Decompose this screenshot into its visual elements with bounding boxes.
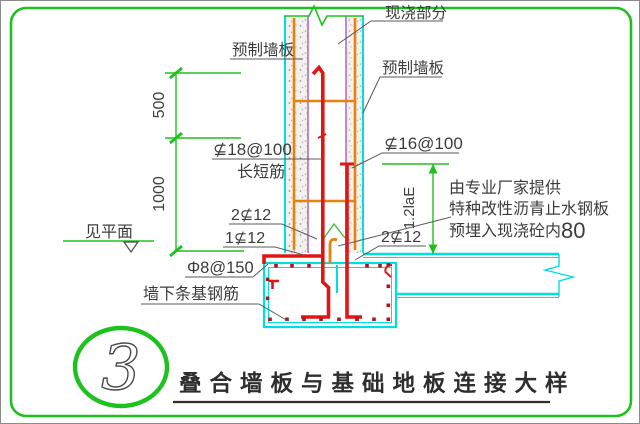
- note-line3: 预埋入现浇砼内: [449, 222, 561, 240]
- note-line2: 特种改性沥青止水钢板: [449, 200, 609, 218]
- label-precast-wall-left: 预制墙板: [232, 41, 294, 59]
- label-wall-vertical-rebar: ⊈18@100: [213, 140, 292, 159]
- rebar-red-bars: [264, 68, 392, 318]
- waterstop-plate: [330, 239, 337, 263]
- drawing-title: 叠合墙板与基础地板连接大样: [179, 370, 576, 396]
- label-starter-rebar: ⊈16@100: [384, 134, 463, 153]
- detail-number: 3: [101, 331, 140, 404]
- label-foundation-stirrup: Φ8@150: [187, 259, 254, 277]
- label-top-bars-left: 2⊈12: [231, 207, 271, 224]
- label-joint-bars-right: 2⊈12: [381, 229, 421, 246]
- note-embed-depth: 80: [561, 218, 585, 243]
- grout-key-chamfer: [324, 224, 345, 238]
- label-strip-foundation-rebar: 墙下条基钢筋: [143, 285, 239, 303]
- label-wall-rebar-note: 长短筋: [237, 163, 285, 181]
- label-cast-in-place: 现浇部分: [385, 4, 447, 22]
- floor-slab-outline: [363, 254, 573, 298]
- label-ground-reference: 见平面: [85, 224, 133, 241]
- note-line1: 由专业厂家提供: [449, 179, 561, 197]
- label-middle-bar: 1⊈12: [225, 230, 265, 247]
- dim-500: 500: [151, 92, 168, 119]
- ground-level-symbol: [124, 242, 138, 252]
- detail-drawing-canvas: 现浇部分 预制墙板 预制墙板 ⊈18@100 长短筋 ⊈16@100 由专业厂家…: [1, 1, 640, 424]
- label-precast-wall-right: 预制墙板: [382, 59, 444, 77]
- drawing-sheet: 现浇部分 预制墙板 预制墙板 ⊈18@100 长短筋 ⊈16@100 由专业厂家…: [0, 0, 640, 424]
- slab-break-symbol: [545, 254, 573, 297]
- dim-anchorage: 1.2laE: [401, 187, 418, 230]
- dim-1000: 1000: [151, 176, 168, 212]
